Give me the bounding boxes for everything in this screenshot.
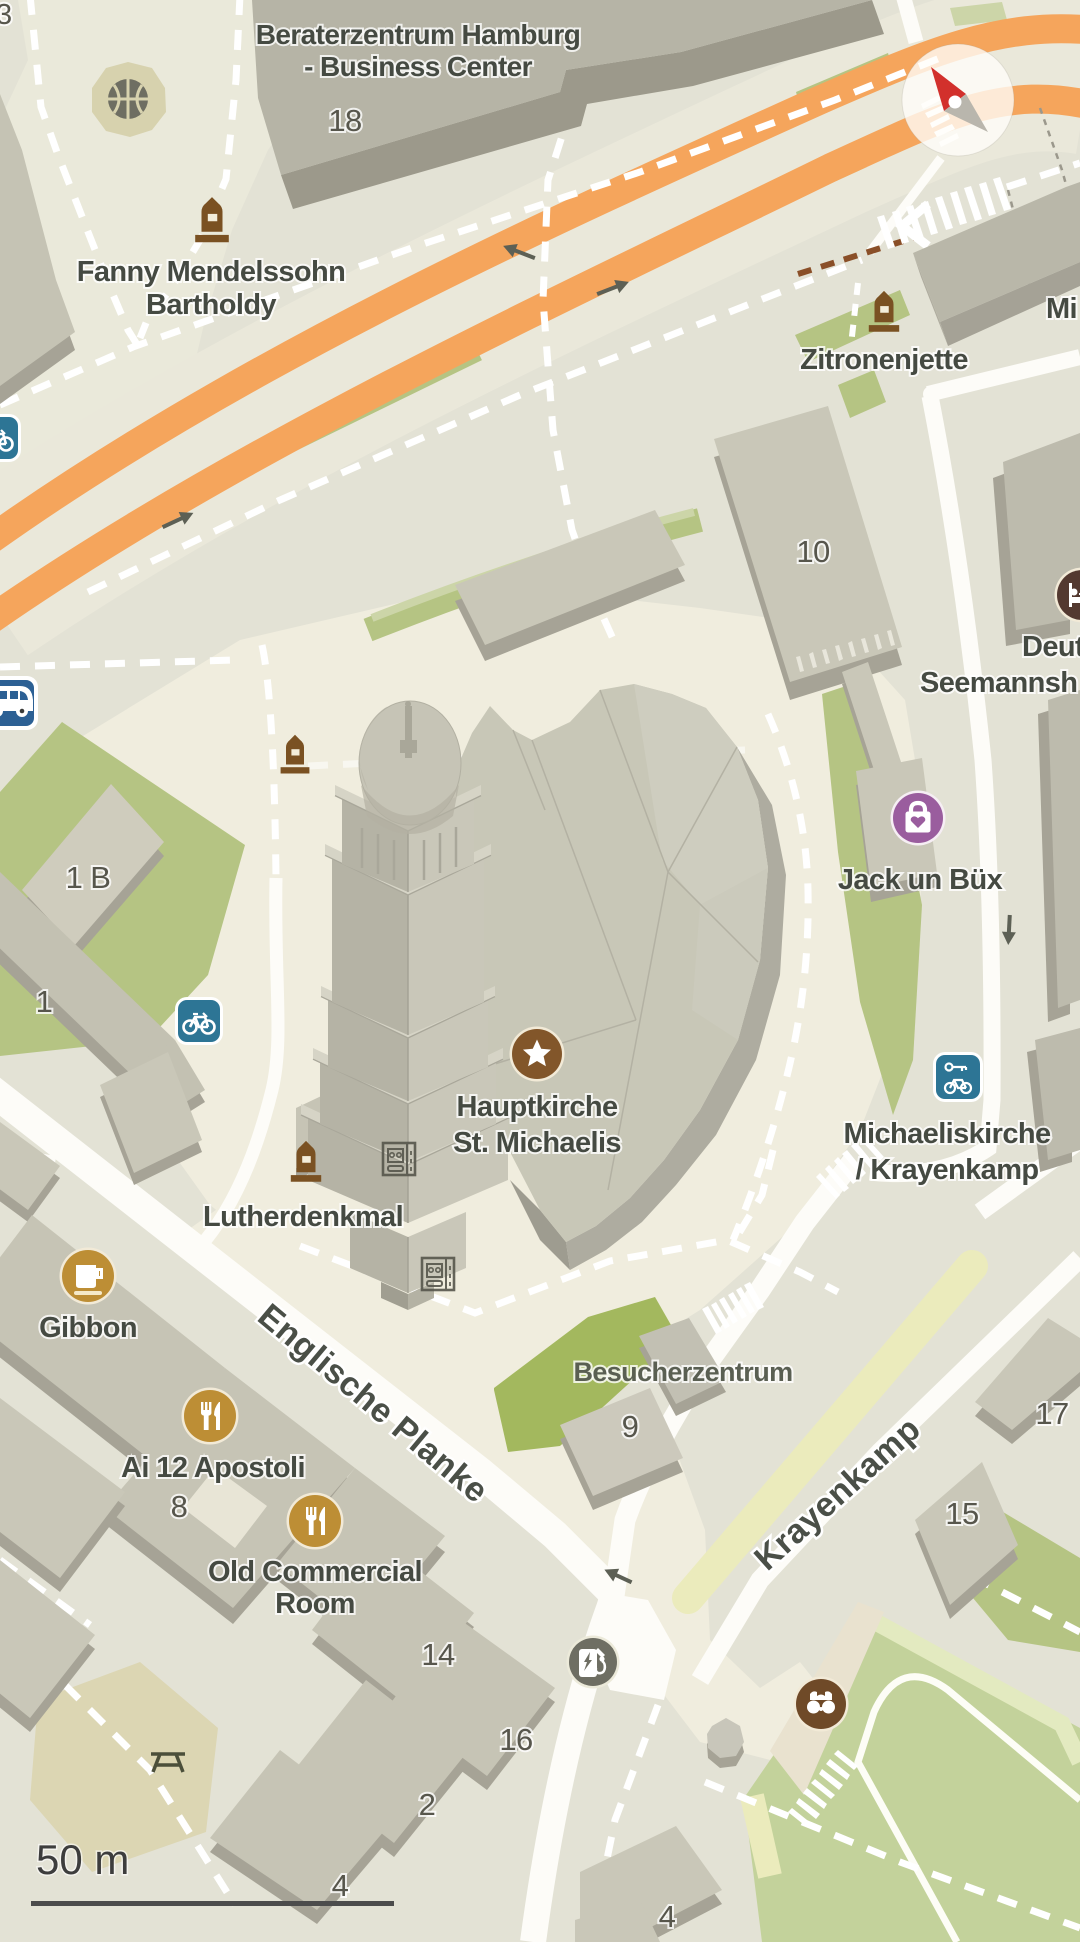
svg-text:15: 15 (945, 1496, 978, 1531)
svg-text:- Business Center: - Business Center (304, 51, 533, 82)
svg-text:17: 17 (1035, 1396, 1068, 1431)
svg-text:18: 18 (328, 103, 361, 138)
svg-text:1 B: 1 B (66, 860, 111, 895)
svg-text:Seemannsh: Seemannsh (920, 667, 1077, 699)
svg-text:Ai 12 Apostoli: Ai 12 Apostoli (121, 1452, 305, 1484)
svg-text:8: 8 (171, 1489, 188, 1524)
svg-text:Fanny Mendelssohn: Fanny Mendelssohn (77, 256, 346, 288)
svg-text:2: 2 (419, 1787, 436, 1822)
svg-text:Bartholdy: Bartholdy (146, 289, 276, 321)
svg-text:Besucherzentrum: Besucherzentrum (573, 1357, 792, 1387)
svg-text:/ Krayenkamp: / Krayenkamp (856, 1154, 1039, 1186)
svg-text:1: 1 (36, 984, 53, 1019)
svg-text:Lutherdenkmal: Lutherdenkmal (203, 1201, 403, 1233)
svg-text:Deuts: Deuts (1022, 631, 1080, 663)
svg-text:4: 4 (659, 1899, 676, 1934)
svg-text:Room: Room (275, 1588, 355, 1620)
svg-text:Beraterzentrum Hamburg: Beraterzentrum Hamburg (256, 19, 580, 50)
svg-text:16: 16 (499, 1722, 532, 1757)
svg-text:Zitronenjette: Zitronenjette (800, 344, 968, 376)
svg-text:Hauptkirche: Hauptkirche (457, 1091, 618, 1123)
svg-text:Mi: Mi (1046, 293, 1077, 325)
svg-text:Michaeliskirche: Michaeliskirche (844, 1118, 1051, 1150)
svg-text:Gibbon: Gibbon (39, 1312, 137, 1344)
svg-text:14: 14 (421, 1637, 455, 1672)
svg-text:Old Commercial: Old Commercial (208, 1556, 422, 1588)
svg-text:3: 3 (0, 0, 12, 31)
svg-text:4: 4 (332, 1868, 349, 1903)
svg-text:50 m: 50 m (36, 1836, 129, 1883)
svg-text:9: 9 (622, 1409, 639, 1444)
svg-text:St. Michaelis: St. Michaelis (453, 1127, 621, 1159)
svg-text:10: 10 (796, 534, 830, 569)
svg-text:Jack un Büx: Jack un Büx (838, 864, 1003, 896)
